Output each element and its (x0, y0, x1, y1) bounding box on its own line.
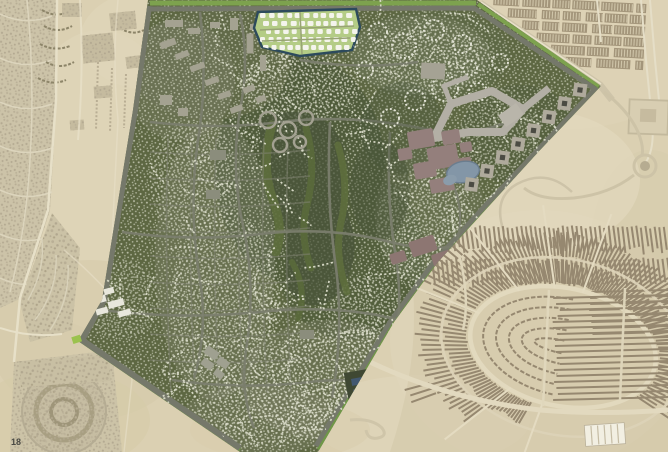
svg-text:18: 18 (11, 437, 21, 447)
